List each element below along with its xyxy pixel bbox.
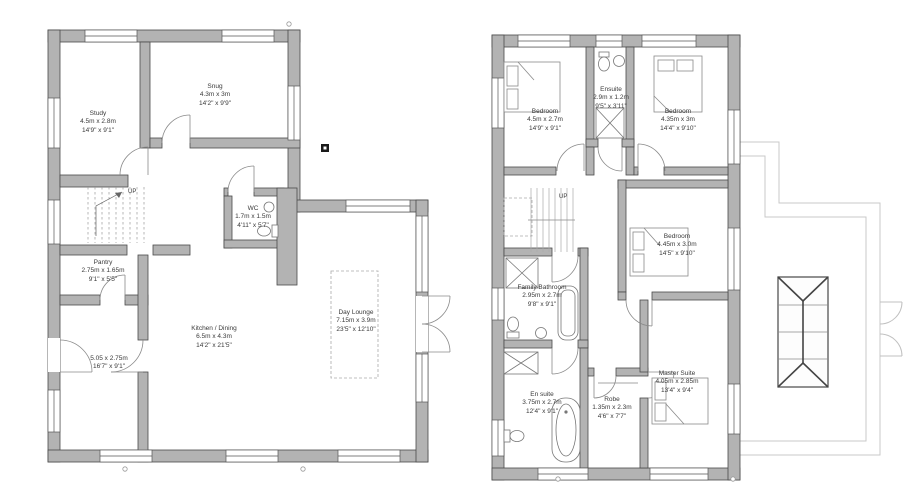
stairs-up-label-first: UP	[559, 194, 567, 200]
room-size-imperial: 14'4" x 9'10"	[660, 125, 696, 133]
room-name: Robe	[592, 396, 631, 404]
room-name: WC	[235, 205, 271, 213]
room-label-wc: WC 1.7m x 1.5m 4'11" x 5'7"	[235, 205, 271, 230]
bathroom-toilet-icon	[507, 317, 519, 338]
room-label-pantry: Pantry 2.75m x 1.65m 9'1" x 5'5"	[82, 259, 125, 284]
master-ensuite-toilet-icon	[504, 430, 524, 442]
roof-lantern	[778, 277, 828, 387]
roof-french-doors	[880, 302, 902, 356]
room-label-family-bathroom: Family Bathroom 2.95m x 2.7m 9'8" x 9'1"	[517, 284, 566, 309]
ensuite-shower-icon	[596, 108, 624, 138]
room-label-ensuite: Ensuite 2.9m x 1.2m 9'5" x 3'11"	[593, 86, 629, 111]
room-name: Bedroom	[657, 233, 696, 241]
room-name: Master Suite	[656, 370, 699, 378]
room-label-day-lounge: Day Lounge 7.15m x 3.9m 23'5" x 12'10"	[336, 309, 375, 334]
roof-plan	[740, 142, 902, 455]
room-size-metric: 6.5m x 4.3m	[191, 333, 237, 341]
room-label-en-suite: En suite 3.75m x 2.7m 12'4" x 9'1"	[522, 391, 561, 416]
room-name: Kitchen / Dining	[191, 325, 237, 333]
room-name: Bedroom	[660, 108, 696, 116]
ground-floor-walls	[48, 30, 428, 462]
room-name: En suite	[522, 391, 561, 399]
room-size-imperial: 14'9" x 9'1"	[80, 127, 116, 135]
room-label-bedroom-1: Bedroom 4.5m x 2.7m 14'9" x 9'1"	[527, 108, 563, 133]
room-label-bedroom-3: Bedroom 4.45m x 3.0m 14'5" x 9'10"	[657, 233, 696, 258]
room-size-metric: 4.35m x 3m	[660, 116, 696, 124]
room-size-metric: 4.45m x 3.0m	[657, 241, 696, 249]
room-name: Study	[80, 110, 116, 118]
room-label-snug: Snug 4.3m x 3m 14'2" x 9'9"	[199, 83, 231, 108]
room-label-kitchen-dining: Kitchen / Dining 6.5m x 4.3m 14'2" x 21'…	[191, 325, 237, 350]
room-size-imperial: 12'4" x 9'1"	[522, 408, 561, 416]
room-name: Bedroom	[527, 108, 563, 116]
room-size-metric: 7.15m x 3.9m	[336, 317, 375, 325]
room-size-metric: 4.5m x 2.8m	[80, 118, 116, 126]
room-size-imperial: 14'2" x 21'5"	[191, 342, 237, 350]
bathroom-basin-icon	[536, 328, 547, 339]
stairs-up-label-ground: UP	[128, 189, 136, 195]
room-size-metric: 3.75m x 2.7m	[522, 399, 561, 407]
room-size-metric: 5.05 x 2.75m	[90, 355, 128, 363]
room-size-metric: 4.3m x 3m	[199, 91, 231, 99]
room-label-study: Study 4.5m x 2.8m 14'9" x 9'1"	[80, 110, 116, 135]
bedroom-2-bed	[654, 56, 702, 112]
room-name: Snug	[199, 83, 231, 91]
room-size-imperial: 14'5" x 9'10"	[657, 250, 696, 258]
room-label-boot-room: 5.05 x 2.75m 16'7" x 9'1"	[90, 355, 128, 372]
room-size-imperial: 4'6" x 7'7"	[592, 413, 631, 421]
room-size-metric: 1.35m x 2.3m	[592, 404, 631, 412]
room-size-imperial: 9'1" x 5'5"	[82, 276, 125, 284]
bedroom-1-bed	[504, 62, 560, 112]
room-size-metric: 2.75m x 1.65m	[82, 267, 125, 275]
room-size-imperial: 9'5" x 3'11"	[593, 103, 629, 111]
room-size-imperial: 14'2" x 9'9"	[199, 100, 231, 108]
floor-plan-drawing	[0, 0, 917, 498]
column-symbol	[321, 144, 329, 152]
room-size-imperial: 23'5" x 12'10"	[336, 326, 375, 334]
room-name: Pantry	[82, 259, 125, 267]
room-name: Day Lounge	[336, 309, 375, 317]
ensuite-basin-icon	[614, 56, 625, 67]
room-name: Family Bathroom	[517, 284, 566, 292]
room-size-metric: 4.05m x 2.85m	[656, 378, 699, 386]
room-size-metric: 2.95m x 2.7m	[517, 292, 566, 300]
room-size-metric: 1.7m x 1.5m	[235, 213, 271, 221]
room-size-metric: 4.5m x 2.7m	[527, 116, 563, 124]
ground-floor-stairs	[88, 187, 144, 243]
room-size-imperial: 13'4" x 9'4"	[656, 387, 699, 395]
room-label-bedroom-2: Bedroom 4.35m x 3m 14'4" x 9'10"	[660, 108, 696, 133]
floor-plan-sheet: Study 4.5m x 2.8m 14'9" x 9'1" Snug 4.3m…	[0, 0, 917, 498]
room-size-imperial: 9'8" x 9'1"	[517, 301, 566, 309]
room-size-imperial: 16'7" x 9'1"	[90, 363, 128, 371]
room-label-robe: Robe 1.35m x 2.3m 4'6" x 7'7"	[592, 396, 631, 421]
room-size-metric: 2.9m x 1.2m	[593, 94, 629, 102]
room-label-master-suite: Master Suite 4.05m x 2.85m 13'4" x 9'4"	[656, 370, 699, 395]
ensuite-toilet-icon	[599, 52, 610, 71]
room-size-imperial: 4'11" x 5'7"	[235, 222, 271, 230]
ground-floor-plan	[48, 30, 450, 462]
master-ensuite-shower-icon	[504, 352, 538, 374]
room-size-imperial: 14'9" x 9'1"	[527, 125, 563, 133]
room-name: Ensuite	[593, 86, 629, 94]
